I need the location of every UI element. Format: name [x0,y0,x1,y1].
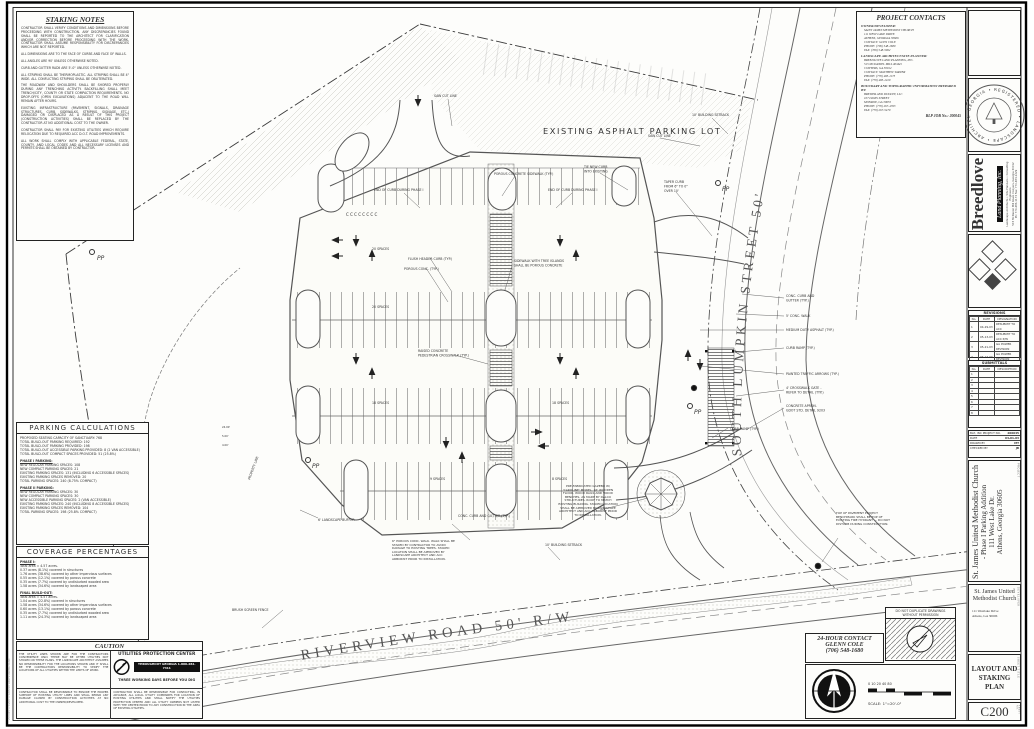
svg-text:10' BUILDING SETBACK: 10' BUILDING SETBACK [545,543,583,547]
svg-text:PEDESTRIAN CROSSWALK (TYP.): PEDESTRIAN CROSSWALK (TYP.) [418,354,469,358]
svg-text:SHALL BE POROUS CONCRETE: SHALL BE POROUS CONCRETE [514,264,562,268]
staking-note: THE ROADWAY AND SHOULDERS SHALL BE SHORE… [21,84,129,103]
sheet-number-side-label: SHEET NO. [1016,705,1020,720]
sheet-title-box: LAYOUT AND STAKING PLAN SHEET TITLE [968,654,1021,700]
developer-box: St. James United Methodist Church 111 We… [968,584,1021,652]
info-label: BLP, INC PROJECT NO. [970,431,1001,435]
svg-text:TIE NEW CURB: TIE NEW CURB [583,165,607,169]
seal-box [968,78,1021,152]
upc-phone: THROUGHOUT GEORGIA 1-800-282-7411 [134,662,200,672]
breedlove-logo-text: Breedlove [969,155,986,232]
no-dig-icon [113,658,130,676]
svg-text:6' LANDSCAPE BUFFER: 6' LANDSCAPE BUFFER [318,518,355,522]
breedlove-logo-sub: Land Planning, Inc. [997,166,1003,222]
info-value: MT [1014,441,1019,445]
svg-text:REFER TO DETAIL (TYP.): REFER TO DETAIL (TYP.) [786,391,824,395]
north-scale-panel: 0 10 20 40 80 SCALE: 1"=20'-0" [805,664,956,719]
project-title-line: 111 West Lake Dr. [988,461,996,582]
svg-text:PP: PP [694,409,702,416]
plot-stamp: 200045 — C200 — LAYOUT AND STAKING PLAN [8,420,16,720]
svg-text:POROUS CONC. (TYP.): POROUS CONC. (TYP.) [404,267,439,271]
sheet-number: C200 [969,703,1020,720]
svg-text:SAW CUT LINE: SAW CUT LINE [434,94,457,98]
revisions-box: REVISIONS No. DATE DESIGNATION 104-29-03… [968,310,1021,358]
svg-text:10' BUILDING SETBACK: 10' BUILDING SETBACK [692,113,730,117]
scale-text: SCALE: 1"=20'-0" [868,701,902,706]
svg-text:PP: PP [312,463,320,470]
developer-side-label: DEVELOPER [1017,587,1020,607]
coverage-line: 1.58 acres (34.6%) covered by landscaped… [20,584,145,588]
svg-text:8 SPACES: 8 SPACES [552,477,567,481]
svg-text:INTO EXISTING: INTO EXISTING [584,170,608,174]
project-info-box: BLP, INC PROJECT NO.200045 DATE04-01-03 … [968,430,1021,458]
info-value: 200045 [1007,431,1019,435]
upc-tagline: THREE WORKING DAYS BEFORE YOU DIG [113,678,200,682]
svg-text:CURB RAMP (TYP.): CURB RAMP (TYP.) [730,427,759,431]
staking-note: ALL ANGLES ARE 90' UNLESS OTHERWISE NOTE… [21,60,129,64]
gazebo [637,470,685,518]
contact-line: (706) 548-1680 [806,648,883,654]
coverage-percentages-panel: COVERAGE PERCENTAGES PHASE I: Total area… [16,546,149,640]
coverage-title: COVERAGE PERCENTAGES [17,547,148,558]
svg-text:20 SPACES: 20 SPACES [372,305,389,309]
breedlove-logo-box: Breedlove Land Planning, Inc. Landscape … [968,154,1021,232]
caution-note-2: CONTRACTOR SHALL BE RESPONSIBLE TO ENSUR… [17,689,111,719]
breedlove-addr: Ph: 770-483-1173 Fax: 770-483-1229 [1015,155,1018,232]
info-value: JB [1016,446,1019,450]
la-line: FAX: (770) 483-1229 [864,78,961,82]
porous-sidewalk-spine [486,164,516,528]
project-title-line: Athens, Georgia 30605 [996,461,1004,582]
graphic-scale-bar: 0 10 20 40 80 SCALE: 1"=20'-0" [868,682,951,706]
revision-row: 104-29-03RESUBMIT TO ACC [970,322,1020,332]
survey-line: FAX: (770) 267-5479 [864,108,961,112]
svg-text:5.00': 5.00' [222,434,229,438]
project-title-line: St. James United Methodist Church [969,461,980,582]
upc-title: UTILITIES PROTECTION CENTER [113,652,200,657]
info-value: 04-01-03 [1005,436,1019,440]
developer-addr: Athens, GA 30606 [972,614,1020,619]
sub-col: DESCRIPTION [995,367,1020,372]
svg-text:4.00': 4.00' [222,443,229,447]
svg-text:POROUS CONCRETE SIDEWALK (TYP.: POROUS CONCRETE SIDEWALK (TYP.) [494,172,553,176]
caution-note-3: CONTRACTOR SHALL BE RESPONSIBLE FOR CONT… [111,689,202,719]
do-not-duplicate-panel: DO NOT DUPLICATE DRAWINGS WITHOUT PERMIS… [885,607,956,661]
survey-heading: BOUNDARY AND TOPOGRAPHIC INFORMATION PRE… [861,84,961,92]
existing-lot-label: EXISTING ASPHALT PARKING LOT [543,126,721,136]
stamp-box-blank [968,10,1021,76]
svg-text:18 SPACES: 18 SPACES [552,401,569,405]
staking-note: CURB AND GUTTER RADII ARE 5'-0" UNLESS O… [21,67,129,71]
svg-text:CONCRETE APRON.: CONCRETE APRON. [786,404,817,408]
info-label: DRAWN BY [970,441,985,445]
svg-text:CURB RAMP (TYP.): CURB RAMP (TYP.) [786,346,815,350]
revision-row: 205-13-03RESUBMIT TO ACC P/W [970,332,1020,342]
project-contacts-title: PROJECT CONTACTS [861,14,961,22]
sheet-title-side-label: SHEET TITLE [1017,657,1020,678]
svg-text:CONC. CURB AND GUTTER (TYP.): CONC. CURB AND GUTTER (TYP.) [458,514,510,518]
benchmark-note: TOP OF PAVEMENT PROJECT BENCHMARK SHALL … [836,512,892,552]
submittals-table: No. DATE DESCRIPTION 1 2 3 4 5 6 7 8 [969,366,1020,416]
caution-note-1: THE UTILITY LINES SHOWN ARE FOR THE CONT… [17,651,111,689]
svg-text:FLUSH HEADER CURB (TYP.): FLUSH HEADER CURB (TYP.) [408,257,452,261]
svg-text:PP: PP [97,255,105,262]
staking-note: EXISTING INFRASTRUCTURE (PAVEMENT, SIGNA… [21,107,129,126]
svg-text:C C C C C C C C: C C C C C C C C [346,212,377,217]
project-side-label: PROJECT [1017,463,1020,478]
staking-notes-panel: STAKING NOTES CONTRACTOR SHALL VERIFY CO… [16,11,134,241]
svg-text:20 SPACES: 20 SPACES [372,247,389,251]
rev-col: DESIGNATION [995,317,1020,322]
sheet-title-line: LAYOUT AND [969,665,1020,674]
svg-text:END OF CURB DURING PHASE I: END OF CURB DURING PHASE I [548,188,598,192]
parking-calculations-title: PARKING CALCULATIONS [17,423,148,434]
blp-job-no: BLP JOB No.: 200045 [861,114,961,118]
svg-text:GDOT STD. DETAIL 9203: GDOT STD. DETAIL 9203 [786,409,825,413]
revision-row: 305-21-03GA POWER REVISION [970,342,1020,352]
coverage-line: 1.11 acres (24.3%) covered by landscaped… [20,615,145,619]
svg-text:5' CONC. WALK: 5' CONC. WALK [786,314,811,318]
svg-text:9 SPACES: 9 SPACES [430,477,445,481]
scale-ticks: 0 10 20 40 80 [868,682,892,686]
submittals-box: SUBMITTALS No. DATE DESCRIPTION 1 2 3 4 … [968,360,1021,428]
gazebo-note: PRE-FABRICATED GAZEBO W/ 'CAROLINE' MODE… [558,485,618,543]
svg-text:SIDEWALK WITH TREE ISLANDS: SIDEWALK WITH TREE ISLANDS [514,259,564,263]
parking-line: TOTAL PARKING SPACES: 198 (25.8% COMPACT… [20,510,145,514]
sheet-title-line: STAKING PLAN [969,674,1020,692]
drawing-sheet: SOUTH LUMPKIN STREET 50' RIVERVIEW ROAD … [0,0,1034,729]
project-title-box: St. James United Methodist Church - Phas… [968,460,1021,582]
svg-text:MEDIUM DUTY ASPHALT (TYP.): MEDIUM DUTY ASPHALT (TYP.) [786,328,834,332]
submittal-row: 8 [970,410,1020,415]
staking-note: CONTRACTOR SHALL VERIFY CONDITIONS AND D… [21,27,129,50]
info-label: CHECKED BY [970,446,988,450]
porous-walk-note: 6" POROUS CONC. WALK. WALK SHALL BE STAK… [392,540,456,580]
svg-text:OVER 10': OVER 10' [664,189,679,193]
dnd-line: WITHOUT PERMISSION [886,613,955,617]
svg-text:TAPER CURB: TAPER CURB [663,180,684,184]
svg-text:SAW CUT LINE: SAW CUT LINE [648,134,671,138]
svg-text:END OF CURB DURING PHASE I: END OF CURB DURING PHASE I [374,188,424,192]
diamond-logo-box [968,234,1021,308]
sheet-number-box: C200 SHEET NO. [968,702,1021,721]
project-title-line: - Phase I Parking Addition [980,461,988,582]
staking-note: ALL STRIPING SHALL BE THERMOPLASTIC. ALL… [21,74,129,82]
developer-name: St. James United [969,589,1020,596]
emergency-contact-panel: 24-HOUR CONTACT GLENN COLE (706) 548-168… [805,633,884,663]
parking-calculations-panel: PARKING CALCULATIONS PROPOSED SEATING CA… [16,422,149,545]
svg-text:PP: PP [722,186,730,193]
parking-line: TOTAL PARKING SPACES: 240 (8.75% COMPACT… [20,479,145,483]
svg-text:RAISED CONCRETE: RAISED CONCRETE [418,349,448,353]
staking-note: ALL WORK SHALL COMPLY WITH APPLICABLE FE… [21,140,129,152]
developer-name: Methodist Church [969,596,1020,603]
svg-text:CONC. CURB AND: CONC. CURB AND [786,294,815,298]
parking-line: TOTAL BUILD-OUT COMPACT SPACES PROVIDED:… [20,452,145,456]
svg-text:FROM 6" TO 0": FROM 6" TO 0" [664,185,688,189]
staking-note: CONTRACTOR SHALL PAY FOR EXISTING UTILIT… [21,129,129,137]
project-contacts-panel: PROJECT CONTACTS OWNER/DEVELOPER: SAINT … [856,11,966,138]
dnd-stamp-icon [886,619,955,659]
svg-text:PAINTED TRAFFIC ARROWS (TYP.): PAINTED TRAFFIC ARROWS (TYP.) [786,372,839,376]
info-label: DATE [970,436,977,440]
svg-text:4' CROSSWALK GATE -: 4' CROSSWALK GATE - [786,386,821,390]
staking-note: ALL DIMENSIONS ARE TO THE FACE OF CURBS … [21,53,129,57]
north-arrow-icon [813,670,855,712]
svg-text:BRUSH SCREEN FENCE: BRUSH SCREEN FENCE [232,608,269,612]
svg-text:24.00': 24.00' [222,425,230,429]
caution-panel: CAUTION THE UTILITY LINES SHOWN ARE FOR … [16,641,203,719]
staking-notes-title: STAKING NOTES [21,15,129,24]
owner-line: FAX: (706) 548-5962 [864,48,961,52]
caution-title: CAUTION [17,642,202,651]
svg-text:18 SPACES: 18 SPACES [372,401,389,405]
svg-text:GUTTER (TYP.): GUTTER (TYP.) [786,299,809,303]
